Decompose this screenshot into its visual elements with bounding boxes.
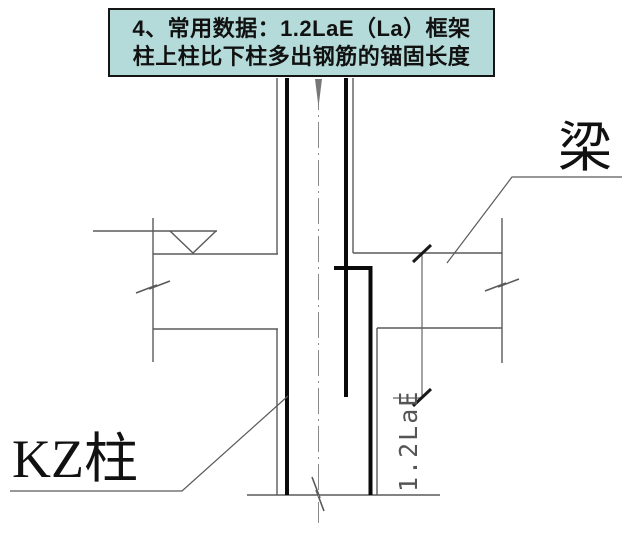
anchorage-dimension: 1.2LaE	[393, 245, 431, 492]
dimension-label: 1.2LaE	[394, 390, 423, 492]
title-line-2: 柱上柱比下柱多出钢筋的锚固长度	[133, 43, 471, 71]
title-box: 4、常用数据：1.2LaE（La）框架 柱上柱比下柱多出钢筋的锚固长度	[108, 8, 495, 77]
column-beam-joint-drawing: 1.2LaE 梁 KZ柱	[0, 0, 629, 541]
centerline-arrow-icon	[315, 79, 322, 107]
beam-label: 梁	[558, 118, 612, 178]
column-centerline	[315, 79, 322, 523]
title-line-1: 4、常用数据：1.2LaE（La）框架	[132, 15, 470, 43]
column-label: KZ柱	[12, 429, 138, 489]
level-triangle-icon	[170, 231, 216, 253]
beam-label-leader	[447, 177, 622, 263]
engineering-diagram: 1.2LaE 梁 KZ柱 4、常用数据：1.2LaE（La）框架 柱上柱比下柱多…	[0, 0, 629, 541]
